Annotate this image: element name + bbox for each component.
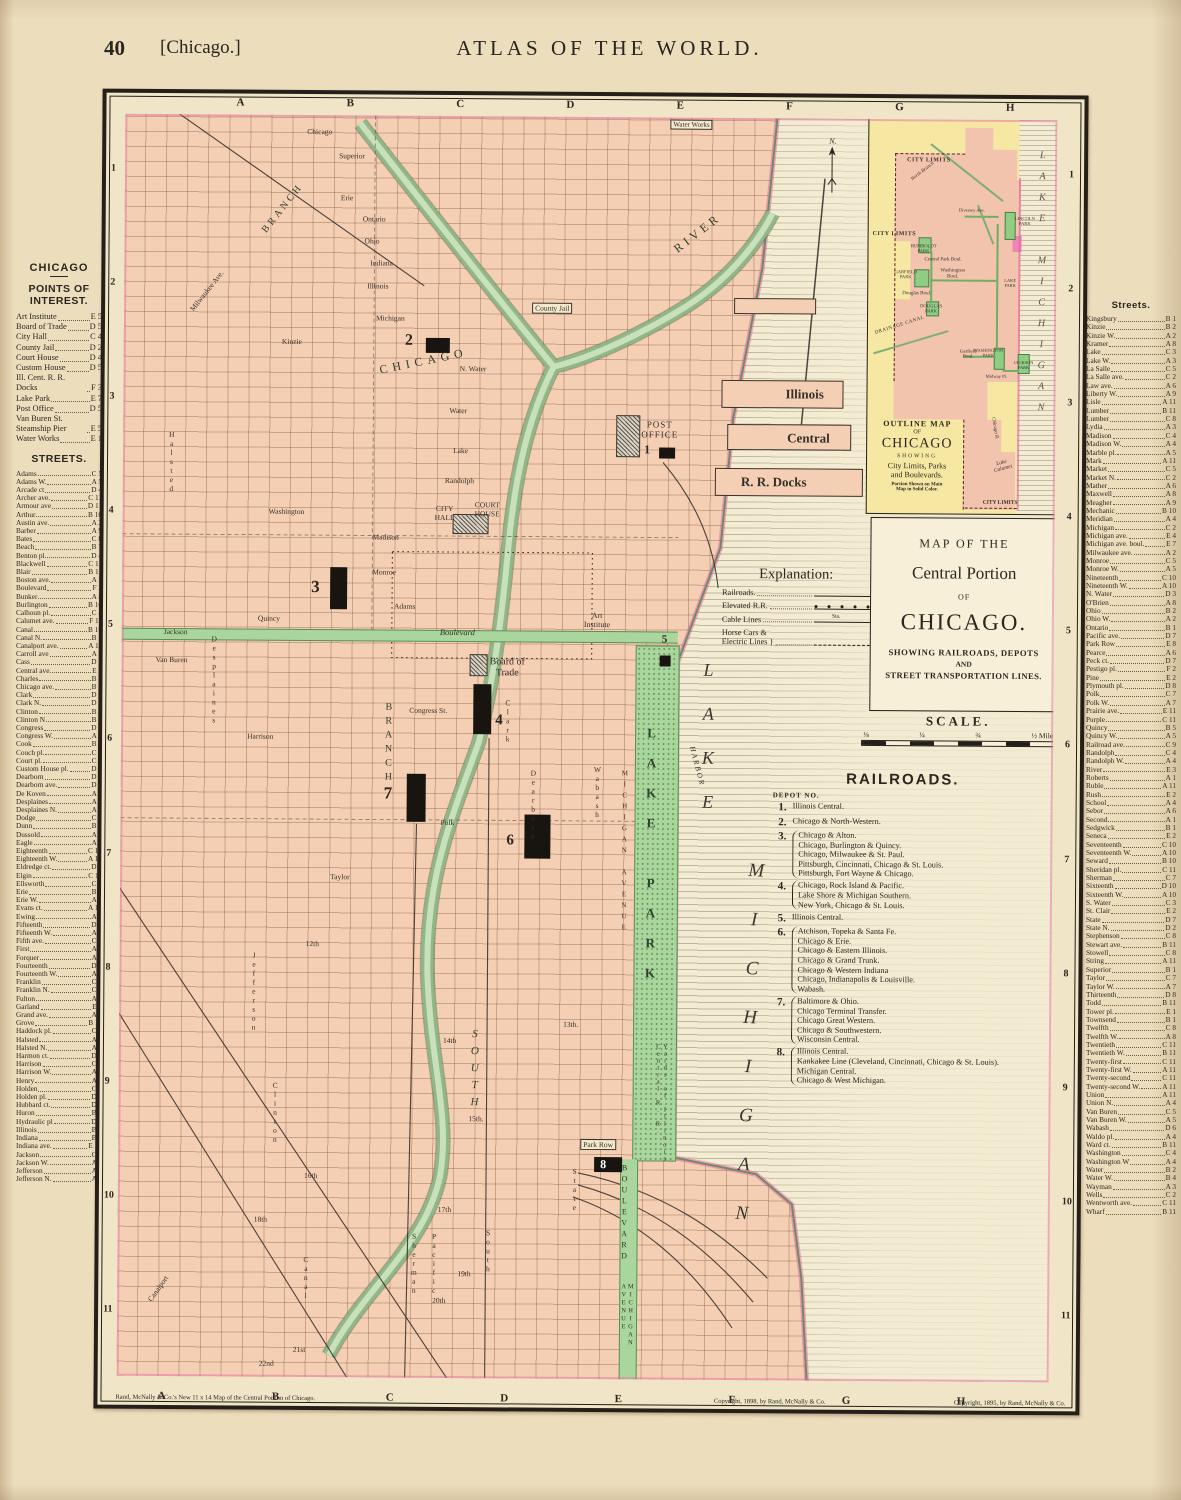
compass-icon <box>825 147 839 195</box>
grid-letter: G <box>842 1395 851 1407</box>
pier <box>734 298 816 315</box>
pier-docks-label: R. R. Docks <box>741 474 807 490</box>
poi-item: Court House D 4 <box>16 353 102 363</box>
grid-number: 3 <box>1067 398 1077 409</box>
right-sidebar: Streets. Kingsbury B 1 Kinzie B 2 Kinzie… <box>1086 300 1176 1216</box>
depot-2-number: 2 <box>405 332 413 350</box>
south-branch-label: BRANCH <box>383 702 395 786</box>
explanation-row-railroads: Railroads. <box>722 588 870 599</box>
street-19th: 19th <box>457 1269 470 1278</box>
map-canvas: 1 2 3 4 5 6 7 8 N. Water Works County Ja… <box>117 114 1058 1382</box>
streetcar-lines <box>121 114 682 822</box>
board-of-trade-building <box>470 654 488 676</box>
grid-number: 1 <box>1069 169 1079 180</box>
scale-tick: ½ Mile <box>1031 731 1053 740</box>
scale-tick: ¾ <box>975 731 981 740</box>
inset-garfield-park-label: GARFIELD PARK <box>894 269 917 279</box>
depot-3-number: 3 <box>311 577 320 597</box>
grid-letter: H <box>1006 102 1015 114</box>
title-l6: AND <box>871 659 1057 669</box>
scale-tick: ⅛ <box>863 730 869 739</box>
street-ohio: Ohio <box>365 236 380 245</box>
street-18th: 18th <box>254 1215 267 1224</box>
street-congress: Congress St. <box>409 706 447 715</box>
copyright-1895: Copyright, 1895, by Rand, McNally & Co. <box>954 1400 1066 1408</box>
explanation-row-cable: Cable Lines <box>722 614 870 625</box>
inset-jackson-park-label: JACKSON PARK <box>1014 360 1034 370</box>
street-pacific: Pacific <box>429 1232 438 1290</box>
poi-heading: POINTS OF INTEREST. <box>16 283 102 307</box>
street-ontario: Ontario <box>363 214 386 223</box>
depot-no-label: DEPOT NO. <box>773 791 1047 801</box>
street-index-item: Wharf B 11 <box>1086 1208 1176 1216</box>
grid-number: 6 <box>107 733 117 744</box>
street-20th: 20th <box>432 1296 445 1305</box>
street-16th: 16th <box>304 1171 317 1180</box>
inset-caption-l6: and Boulevards. <box>869 470 965 480</box>
inset-diversey-label: Diversey Ave. <box>959 208 985 213</box>
inset-lake-park-label: LAKE PARK <box>1004 278 1016 288</box>
city-hall-label: CITY HALL <box>435 504 455 522</box>
inset-city-limits-bottom: CITY LIMITS <box>983 500 1018 506</box>
right-streets-heading: Streets. <box>1086 300 1176 312</box>
railroad-entry: 1. Illinois Central. <box>759 801 1047 815</box>
railroad-entry: 8. Illinois Central.Kankakee Line (Cleve… <box>757 1047 1045 1087</box>
street-14th: 14th <box>443 1036 456 1045</box>
inset-douglas-park-label: DOUGLAS PARK <box>920 303 942 313</box>
jackson-band-label: Jackson <box>164 627 188 636</box>
street-sherman: Sherman <box>409 1232 418 1290</box>
poi-item: Lake Park E 7 <box>16 394 102 404</box>
street-washington: Washington <box>269 507 305 516</box>
map-frame: ABCDEFGH ABCDEFGH 1234567891011 12345678… <box>93 89 1088 1416</box>
inset-washington-park-label: WASHINGTON PARK <box>974 348 1003 358</box>
street-clark: Clark <box>503 698 512 748</box>
railroad-entry: 2. Chicago & North-Western. <box>758 816 1046 830</box>
inset-central-park-boul-label: Central Park Boul. <box>924 257 961 262</box>
street-randolph: Randolph <box>445 476 474 485</box>
explanation-legend: Explanation: Railroads. Elevated R.R. Ca… <box>722 566 871 651</box>
grid-number: 5 <box>1066 626 1076 637</box>
depot-3 <box>330 567 347 609</box>
inset-midway-label: Midway Pl. <box>986 374 1007 379</box>
grid-number: 9 <box>105 1075 115 1086</box>
atlas-title: ATLAS OF THE WORLD. <box>98 36 1121 61</box>
county-jail-label: County Jail <box>532 303 572 314</box>
michigan-avenue-2-label: MICHIGAN AVENUE <box>620 1283 635 1375</box>
railroad-line-symbol <box>814 595 870 596</box>
pier-central-label: Central <box>787 430 830 446</box>
poi-item: Ill. Cent. R. R. Docks F 3 <box>16 373 102 393</box>
poi-list: Art Institute E 5 Board of Trade D 5 Cit… <box>16 312 102 445</box>
explanation-row-horsecar: Horse Cars & Electric Lines } <box>722 627 870 647</box>
street-index-item: Ellsworth C 6 <box>16 880 102 888</box>
boulevard-label: BOULEVARD <box>619 1163 629 1278</box>
inset-outline-map: CITY LIMITS CITY LIMITS CITY LIMITS LINC… <box>866 119 1058 515</box>
scale-heading: SCALE. <box>861 713 1055 730</box>
street-adams: Adams <box>394 602 415 611</box>
inset-caption-l2: OF <box>869 429 965 436</box>
inset-washington-boul-label: Washington Boul. <box>940 267 965 279</box>
scale-tick: ¼ <box>919 730 925 739</box>
street-polk: Polk <box>440 818 454 827</box>
post-office-label: POST OFFICE <box>641 419 678 439</box>
scale-ticks: ⅛ ¼ ¾ ½ Mile <box>861 730 1055 740</box>
poi-item: Water Works E 1 <box>16 434 102 444</box>
title-l3: OF <box>871 592 1057 602</box>
poi-item: Van Buren St. Steamship Pier E 5 <box>16 414 102 434</box>
street-monroe: Monroe <box>372 567 396 576</box>
inset-garfield-boul-label: Garfield Boul. <box>960 350 977 360</box>
right-streets-list: Kingsbury B 1 Kinzie B 2 Kinzie W. A 2 K… <box>1086 315 1176 1216</box>
compass-n-label: N. <box>829 137 836 146</box>
pier-illinois <box>721 380 843 409</box>
inset-lincoln-park-label: LINCOLN PARK <box>1015 216 1035 226</box>
streets-heading: STREETS. <box>16 453 102 465</box>
cable-line-symbol <box>814 615 870 623</box>
grid-letter: C <box>456 98 464 110</box>
grid-letter: C <box>386 1392 394 1404</box>
pier-illinois-label: Illinois <box>785 386 823 402</box>
street-desplaines: Desplaines <box>209 634 219 706</box>
left-streets-list: Adams C 5 Adams W. A 5 Arcade ct D 4 Arc… <box>16 470 102 1184</box>
street-indiana: Indiana <box>370 258 393 267</box>
poi-item: Board of Trade D 5 <box>16 322 102 332</box>
grid-numbers-right: 1234567891011 <box>1061 169 1079 1321</box>
title-l5: SHOWING RAILROADS, DEPOTS <box>871 647 1057 658</box>
grid-number: 8 <box>105 961 115 972</box>
street-15th: 15th. <box>468 1114 483 1123</box>
street-harrison: Harrison <box>247 732 273 741</box>
grid-number: 3 <box>109 391 119 402</box>
railroads-entries: 1. Illinois Central. 2. Chicago & North-… <box>757 801 1047 1087</box>
depot-5-number: 5 <box>662 633 668 645</box>
grid-number: 8 <box>1063 968 1073 979</box>
railroad-entry: 4. Chicago, Rock Island & Pacific.Lake S… <box>758 881 1046 912</box>
grid-number: 11 <box>1061 1310 1071 1321</box>
grid-letter: E <box>677 100 684 112</box>
street-12th: 12th <box>306 939 319 948</box>
inset-caption: OUTLINE MAP OF CHICAGO SHOWING City Limi… <box>869 419 966 493</box>
street-chicago: Chicago <box>307 127 332 136</box>
elevated-line-symbol <box>814 604 870 609</box>
grid-letter: F <box>786 100 793 112</box>
inset-caption-l4: SHOWING <box>869 453 965 460</box>
poi-item: Custom House D 5 <box>16 363 102 373</box>
grid-number: 4 <box>1067 512 1077 523</box>
grid-number: 5 <box>108 619 118 630</box>
railroads-heading: RAILROADS. <box>759 770 1047 789</box>
inset-city-limits-mid: CITY LIMITS <box>873 231 917 237</box>
poi-item: County Jail D 2 <box>16 343 102 353</box>
railroad-entry: 5. Illinois Central. <box>758 912 1046 926</box>
depot-5 <box>660 655 671 666</box>
atlas-page: { "header":{"page_number":"40","page_lab… <box>0 0 1181 1500</box>
grid-number: 10 <box>1062 1196 1072 1207</box>
grid-number: 4 <box>109 505 119 516</box>
grid-number: 9 <box>1063 1082 1073 1093</box>
street-van-buren: Van Buren <box>156 655 188 664</box>
inset-midway-line <box>1003 370 1019 372</box>
grid-letter: G <box>895 101 904 113</box>
map-credit: Rand, McNally & Co.'s New 11 x 14 Map of… <box>115 1394 315 1402</box>
left-sidebar: CHICAGO POINTS OF INTEREST. Art Institut… <box>16 262 102 1183</box>
street-taylor: Taylor <box>330 872 350 881</box>
street-n-water: N. Water <box>460 364 487 373</box>
railroad-entry: 7. Baltimore & Ohio.Chicago Terminal Tra… <box>757 996 1045 1046</box>
street-jefferson: Jefferson <box>249 951 258 1021</box>
ic-yards-label: Yards of Illinois Central R. R. <box>654 1043 669 1168</box>
street-wabash: Wabash <box>592 765 601 827</box>
horsecar-line-symbol <box>814 644 870 645</box>
street-index-item: Pestigo pl. F 2 <box>1086 665 1176 673</box>
street-13th: 13th. <box>563 1020 578 1029</box>
grid-number: 2 <box>110 277 120 288</box>
street-superior: Superior <box>339 151 365 160</box>
grid-letter: D <box>566 99 574 111</box>
grid-number: 7 <box>106 847 116 858</box>
explanation-heading: Explanation: <box>722 566 870 584</box>
grid-number: 11 <box>103 1304 113 1315</box>
grid-number: 2 <box>1068 283 1078 294</box>
street-quincy: Quincy <box>258 614 280 623</box>
sidebar-city-heading: CHICAGO <box>16 262 102 274</box>
map-title-box: MAP OF THE Central Portion OF CHICAGO. S… <box>869 517 1057 712</box>
poi-item: Post Office D 5 <box>16 404 102 414</box>
grid-number: 10 <box>104 1189 114 1200</box>
title-l2: Central Portion <box>871 563 1057 584</box>
title-l7: STREET TRANSPORTATION LINES. <box>871 670 1057 681</box>
street-clinton: Clinton <box>270 1081 279 1141</box>
explanation-row-elevated: Elevated R.R. <box>722 601 870 612</box>
grid-letter: D <box>500 1392 508 1404</box>
park-row-label: Park Row <box>580 1139 616 1150</box>
depot-4 <box>473 684 491 734</box>
grid-letters-top: ABCDEFGH <box>236 97 1014 114</box>
title-l4: CHICAGO. <box>871 609 1057 636</box>
railroad-entry: 3. Chicago & Alton.Chicago, Burlington &… <box>758 830 1046 880</box>
inset-caption-l3: CHICAGO <box>869 436 965 453</box>
street-index-item: Jefferson N. A 3 <box>16 1175 102 1183</box>
depot-7 <box>407 774 426 822</box>
grid-number: 1 <box>111 163 121 174</box>
grid-letter: E <box>615 1393 622 1405</box>
inset-caption-l7: Portion Shown on Main Map in Solid Color… <box>869 482 965 493</box>
street-dearborn: Dearborn <box>528 769 538 841</box>
depot-6-number: 6 <box>506 832 514 849</box>
board-of-trade-label: Board of Trade <box>490 656 525 678</box>
michigan-avenue-label: MICHIGAN AVENUE <box>620 769 629 939</box>
depot-4-number: 4 <box>495 712 503 729</box>
railroads-legend: RAILROADS. DEPOT NO. 1. Illinois Central… <box>757 770 1047 1089</box>
street-madison: Madison <box>372 532 398 541</box>
rule <box>50 276 68 277</box>
water-works-label: Water Works <box>670 120 712 130</box>
poi-item: City Hall C 4 <box>16 332 102 342</box>
depot-8-number: 8 <box>600 1157 606 1172</box>
depot-8 <box>594 1157 622 1172</box>
street-water: Water <box>449 406 467 415</box>
scale: SCALE. ⅛ ¼ ¾ ½ Mile <box>861 713 1055 747</box>
street-illinois: Illinois <box>367 281 388 290</box>
grid-number: 6 <box>1065 740 1075 751</box>
street-kinzie: Kinzie <box>282 337 302 346</box>
boulevard-band-label: Boulevard <box>440 627 475 637</box>
street-erie: Erie <box>341 193 354 202</box>
grid-letter: A <box>236 97 244 109</box>
street-halsted: Halsted <box>167 430 176 492</box>
copyright-1898: Copyright, 1898, by Rand, McNally & Co. <box>714 1398 826 1406</box>
street-17th: 17th <box>438 1205 451 1214</box>
street-21st: 21st <box>293 1345 306 1354</box>
page-header: 40 [Chicago.] ATLAS OF THE WORLD. <box>98 30 1121 64</box>
inset-douglas-boul-label: Douglas Boul. <box>902 291 931 296</box>
title-l1: MAP OF THE <box>871 536 1057 552</box>
art-institute-label: Art Institute <box>584 611 610 629</box>
grid-number: 7 <box>1064 854 1074 865</box>
court-house-label: COURT HOUSE <box>475 500 500 518</box>
inset-caption-l1: OUTLINE MAP <box>869 419 965 429</box>
street-22nd: 22nd <box>259 1359 274 1368</box>
depot-1-number: 1 <box>644 442 650 457</box>
south-river-label: SOUTH <box>468 1028 481 1113</box>
depot-7-number: 7 <box>384 784 393 804</box>
post-office-building <box>616 415 640 457</box>
street-state: State <box>570 1167 579 1217</box>
street-lake: Lake <box>453 446 468 455</box>
street-michigan: Michigan <box>376 313 405 322</box>
street-canal: Canal <box>301 1255 310 1305</box>
railroad-entry: 6. Atchison, Topeka & Santa Fe.Chicago &… <box>757 926 1045 995</box>
grid-letter: B <box>347 97 354 109</box>
depot-1 <box>659 447 675 458</box>
poi-item: Art Institute E 5 <box>16 312 102 322</box>
inset-humboldt-park-label: HUMBOLDT PARK <box>910 243 936 253</box>
street-index-item: Plymouth pl. D 8 <box>1086 682 1176 690</box>
street-south: South <box>483 1228 492 1278</box>
